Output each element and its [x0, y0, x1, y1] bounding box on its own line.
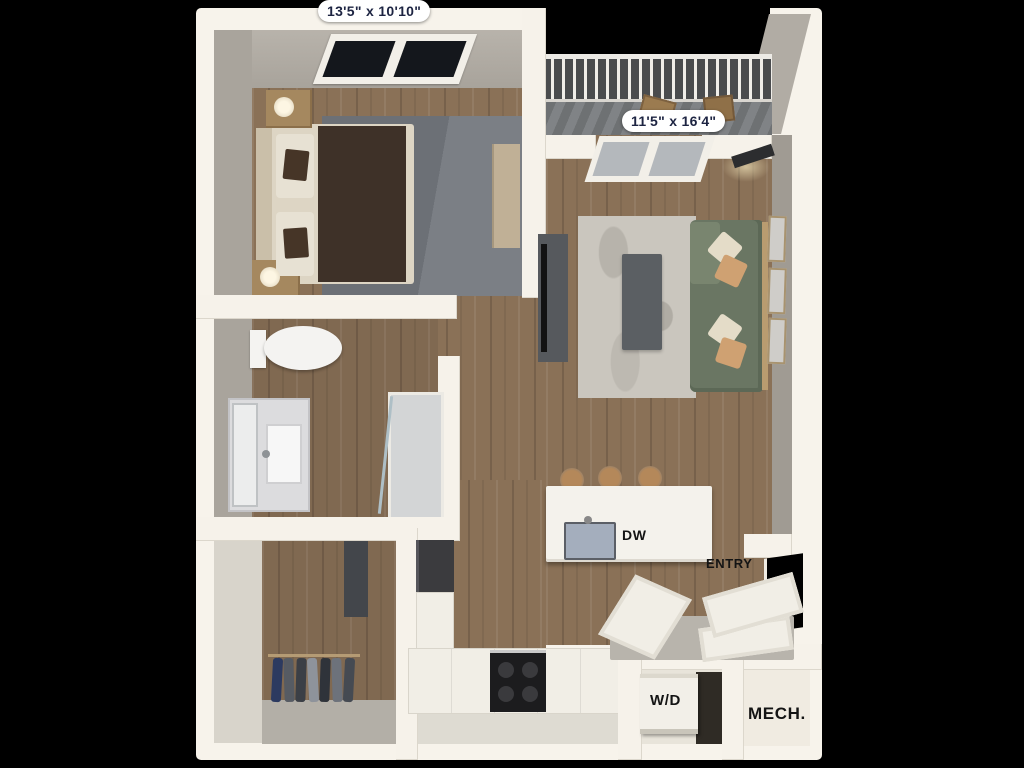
hanging-clothes — [331, 658, 343, 702]
closet-shelf-unit — [344, 541, 368, 617]
bedroom-dimensions-badge: 13'5" x 10'10" — [318, 0, 430, 22]
bathroom-south-wall — [196, 517, 460, 541]
floorplan-canvas: DW ENTRY W/D MECH. 13'5" x 10'10" 11'5" … — [0, 0, 1024, 768]
bedroom-south-wall — [196, 295, 457, 319]
burner — [522, 662, 538, 678]
wd-mech-divider-wall — [722, 656, 744, 760]
island-sink — [564, 522, 616, 560]
dishwasher-label: DW — [622, 527, 647, 543]
refrigerator — [416, 540, 454, 592]
bed-accent-pillow — [283, 227, 309, 259]
shower — [388, 392, 444, 524]
mech-room-label: MECH. — [748, 704, 806, 724]
hanging-clothes — [283, 658, 295, 702]
table-lamp — [260, 267, 280, 287]
door-glass-pane — [648, 142, 705, 176]
wall-art — [767, 216, 787, 263]
wd-closet-shadow — [696, 672, 722, 744]
wall-art — [767, 318, 787, 365]
bedroom-window — [313, 34, 477, 84]
washer-dryer-label: W/D — [650, 692, 681, 709]
television — [541, 244, 547, 352]
living-dimensions-badge: 11'5" x 16'4" — [622, 110, 725, 132]
burner — [498, 662, 514, 678]
window-pane — [393, 41, 466, 77]
utility-left-wall — [618, 644, 642, 760]
closet-rod — [268, 654, 360, 657]
kitchen-cabinet-left — [416, 592, 454, 650]
table-lamp — [274, 97, 294, 117]
toilet-bowl — [264, 326, 342, 370]
burner — [522, 686, 538, 702]
entry-wall-jog — [744, 534, 792, 558]
closet-right-wall — [396, 528, 418, 760]
kitchen-floor-strip — [408, 714, 622, 744]
bed-accent-pillow — [282, 149, 309, 181]
coffee-table — [622, 254, 662, 350]
balcony-wall-stub — [546, 135, 596, 159]
bed-headboard — [256, 128, 272, 280]
closet-floor-entry — [262, 700, 396, 744]
window-pane — [322, 41, 395, 77]
balcony-sliding-door — [585, 136, 716, 182]
door-glass-pane — [592, 142, 649, 176]
island-faucet — [584, 516, 592, 524]
bedroom-left-wall-face — [214, 30, 252, 298]
bedroom-dresser — [492, 144, 520, 248]
vanity-sink — [266, 424, 302, 484]
wall-art — [767, 268, 787, 315]
hanging-clothes — [319, 658, 331, 702]
range-stove — [490, 650, 546, 712]
bed-duvet — [318, 126, 406, 282]
sink-faucet — [262, 450, 270, 458]
hanging-clothes — [295, 658, 307, 702]
entry-label: ENTRY — [706, 556, 753, 571]
burner — [498, 686, 514, 702]
balcony-railing — [540, 54, 772, 102]
closet-left-wall-face — [214, 541, 262, 743]
vanity-mirror — [232, 403, 258, 507]
balcony-outside-cutout — [540, 8, 770, 58]
